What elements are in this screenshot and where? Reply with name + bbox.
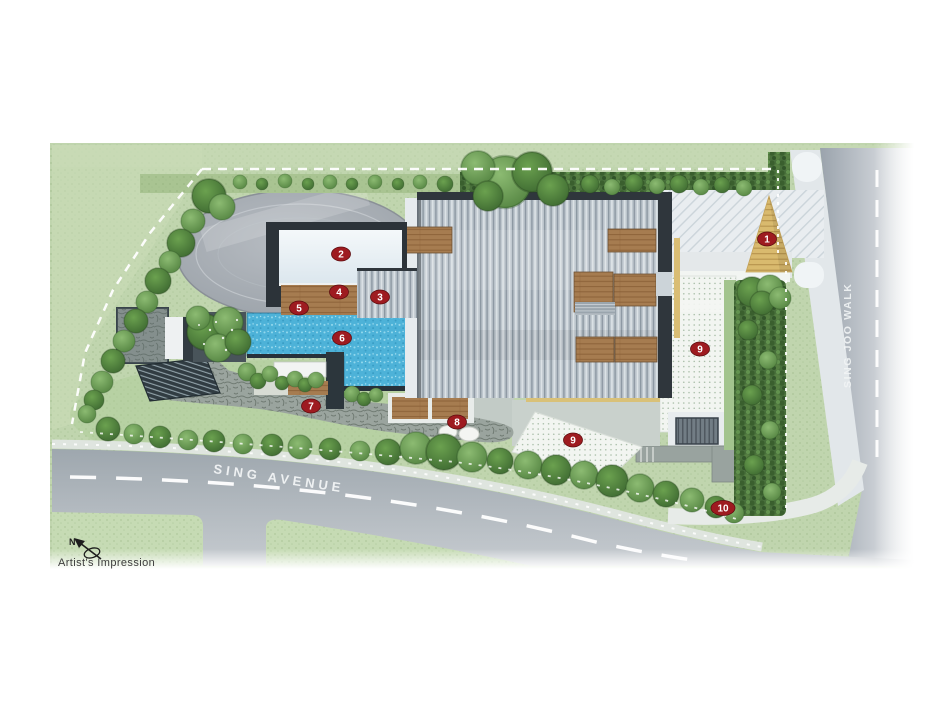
marker-1: 1 xyxy=(758,232,777,246)
louvre-structure xyxy=(676,418,718,444)
garden-stairs xyxy=(136,358,220,401)
marker-8: 8 xyxy=(448,415,467,429)
marker-10: 10 xyxy=(711,501,735,516)
marker-5: 5 xyxy=(290,301,309,315)
site-plan-page: SING AVENUE SING JOO WALK 1 2 3 4 5 6 7 … xyxy=(0,0,943,717)
svg-text:2: 2 xyxy=(338,250,344,261)
marker-6: 6 xyxy=(333,331,352,345)
svg-text:4: 4 xyxy=(336,288,342,299)
svg-text:9: 9 xyxy=(697,345,703,356)
svg-text:5: 5 xyxy=(296,304,302,315)
svg-text:1: 1 xyxy=(764,235,770,246)
main-building-roof xyxy=(405,192,680,398)
svg-text:3: 3 xyxy=(377,293,383,304)
marker-9a: 9 xyxy=(691,342,710,356)
roof-deck xyxy=(406,227,452,253)
site-plan-illustration: SING AVENUE SING JOO WALK 1 2 3 4 5 6 7 … xyxy=(0,0,943,717)
clubhouse-roof xyxy=(266,222,417,318)
fade-right xyxy=(874,143,914,569)
lobby-roof xyxy=(165,317,183,359)
roof-deck xyxy=(576,337,614,362)
fade-bottom xyxy=(50,549,914,569)
roof-deck xyxy=(614,274,656,306)
svg-text:10: 10 xyxy=(717,504,729,515)
marker-3: 3 xyxy=(371,290,390,304)
svg-text:7: 7 xyxy=(308,402,314,413)
marker-2: 2 xyxy=(332,247,351,261)
roof-deck xyxy=(608,229,656,252)
marker-4: 4 xyxy=(330,285,349,299)
svg-text:6: 6 xyxy=(339,334,345,345)
pool-bridge xyxy=(326,352,344,409)
compass-north-label: N xyxy=(69,537,76,547)
svg-text:8: 8 xyxy=(454,418,460,429)
street-label-sing-joo-walk: SING JOO WALK xyxy=(842,283,854,388)
marker-9b: 9 xyxy=(564,433,583,447)
artists-impression-caption: Artist's Impression xyxy=(58,557,155,569)
roof-deck xyxy=(615,337,657,362)
svg-text:9: 9 xyxy=(570,436,576,447)
marker-7: 7 xyxy=(302,399,321,413)
